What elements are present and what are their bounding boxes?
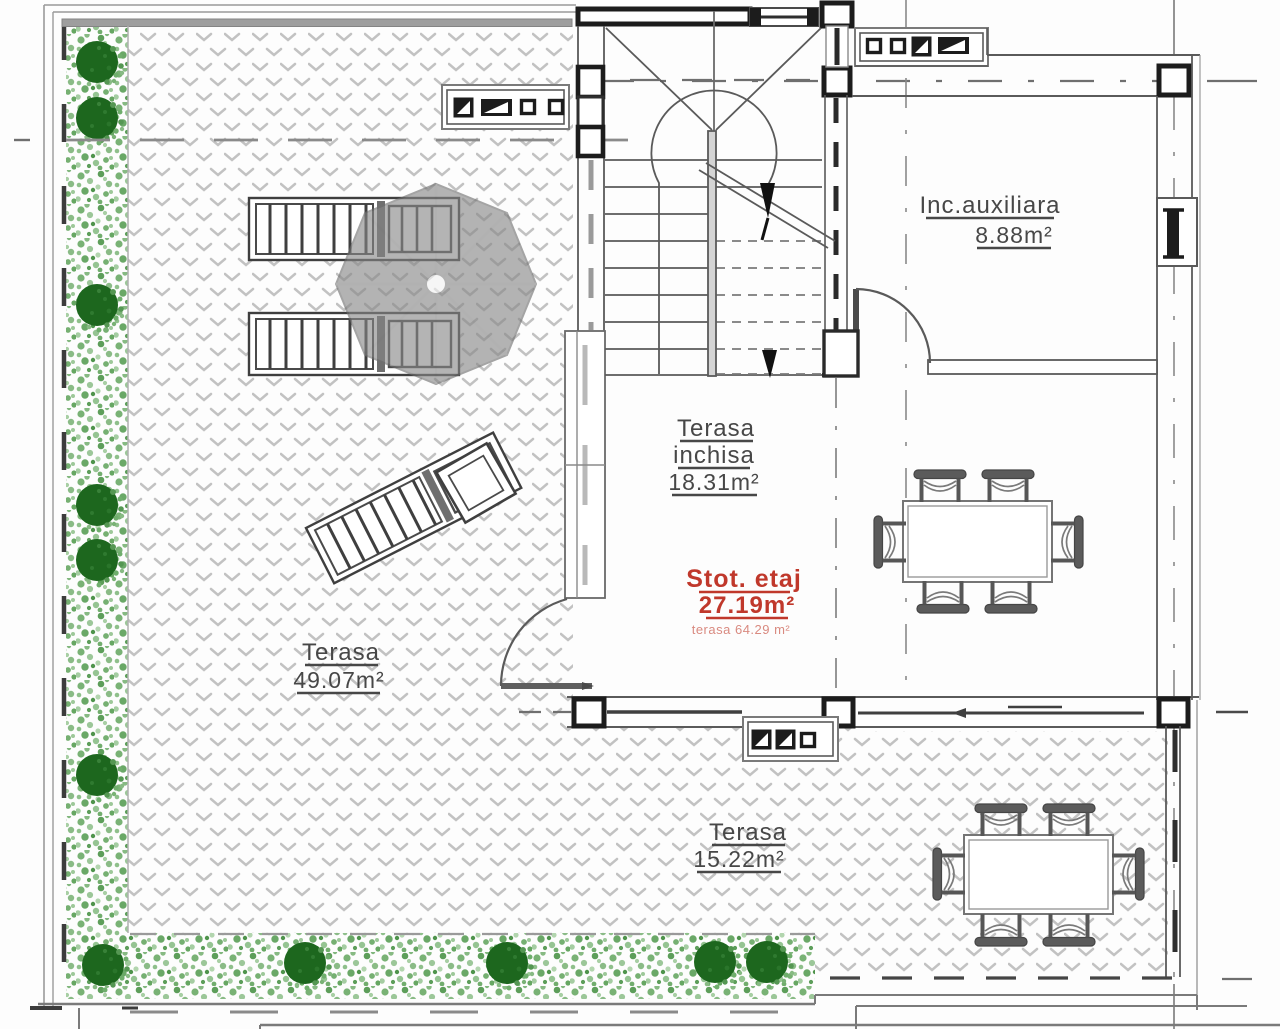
svg-text:49.07m²: 49.07m² bbox=[293, 667, 384, 693]
svg-text:Terasa: Terasa bbox=[677, 415, 755, 442]
svg-text:Terasa: Terasa bbox=[709, 819, 787, 846]
svg-text:terasa 64.29 m²: terasa 64.29 m² bbox=[692, 622, 791, 637]
svg-text:Stot. etaj: Stot. etaj bbox=[686, 565, 802, 593]
svg-text:27.19m²: 27.19m² bbox=[699, 592, 795, 619]
svg-text:15.22m²: 15.22m² bbox=[693, 846, 784, 872]
svg-text:Inc.auxiliara: Inc.auxiliara bbox=[919, 192, 1060, 219]
svg-text:8.88m²: 8.88m² bbox=[975, 222, 1053, 248]
svg-text:inchisa: inchisa bbox=[673, 442, 755, 469]
svg-text:18.31m²: 18.31m² bbox=[668, 469, 759, 495]
svg-text:Terasa: Terasa bbox=[302, 639, 380, 666]
